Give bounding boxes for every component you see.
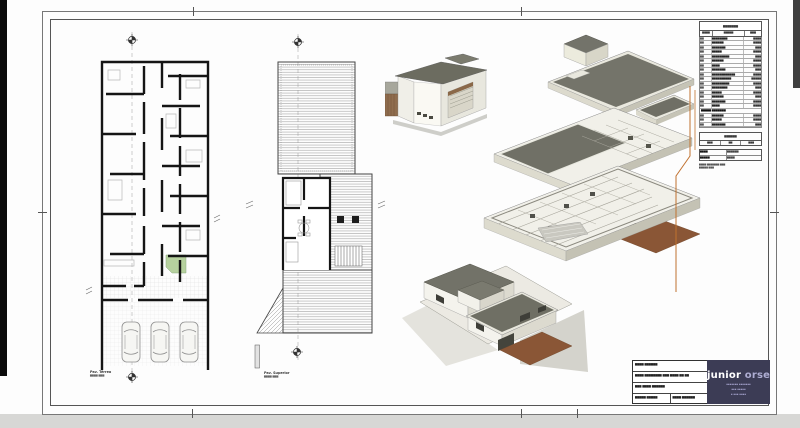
photo-edge-left — [0, 0, 7, 376]
schedule-cell: ▆▆ — [700, 123, 712, 127]
title-block: ▆▆▆▆ ▆▆▆▆▆▆▆▆▆▆ ▆▆▆▆▆▆▆▆ ▆▆▆ ▆▆▆▆ ▆▆ ▆▆▆… — [632, 360, 770, 404]
schedule-cell: ▆▆▆▆▆▆▆▆ — [712, 37, 744, 41]
side-box — [385, 82, 398, 94]
registration-tick — [521, 409, 522, 418]
schedule-cell: ▆▆ — [700, 95, 712, 99]
schedule2-header-cell: ▆▆ — [721, 141, 742, 145]
schedule-cell: ▆▆▆▆ — [744, 37, 761, 41]
schedule-cell: ▆▆▆▆▆▆▆ — [712, 123, 744, 127]
schedule-cell: ▆▆▆▆▆ — [712, 91, 744, 95]
schedule-cell: ▆▆ — [700, 46, 712, 50]
schedule-cell: ▆▆▆▆ — [744, 100, 761, 104]
schedule-cell: ▆▆ — [700, 82, 712, 86]
schedule-cell: ▆▆▆ — [744, 86, 761, 90]
wall-interior — [414, 82, 441, 126]
summary-row: ▆▆▆▆▆▆▆▆▆ — [700, 156, 761, 161]
schedule-header-cell: ▆▆▆ — [745, 31, 761, 36]
schedule-cell: ▆▆▆▆▆▆▆▆▆ — [712, 82, 744, 86]
summary-cell: ▆▆▆▆▆▆ — [727, 150, 761, 155]
caption-scale: ▆▆▆▆ ▆▆▆ — [90, 374, 111, 377]
firm-logo: junior orseli ▪▪▪▪▪▪▪ ▪▪▪▪▪▪▪ ▪▪▪ ▪▪▪▪▪ … — [707, 360, 770, 404]
roof-shed — [257, 288, 283, 333]
north-axis-symbol — [291, 346, 303, 358]
roof-hatch-main — [278, 62, 355, 174]
garage-door — [385, 94, 398, 116]
schedule-cell: ▆▆▆ — [744, 55, 761, 59]
column — [352, 216, 359, 223]
roof-upper-box — [445, 54, 479, 64]
schedule-cell: ▆▆ — [700, 86, 712, 90]
schedule-cell: ▆▆ — [700, 77, 712, 81]
logo-wordmark: junior orseli — [707, 370, 770, 381]
titleblock-field: ▆▆▆▆▆ ▆▆▆▆▆ — [633, 394, 670, 403]
area-schedule: ▆▆▆▆▆▆▆ ▆▆▆▆▆▆▆▆▆▆▆▆ ▆▆▆▆▆▆▆▆▆▆▆▆▆▆▆▆▆▆▆… — [699, 21, 762, 169]
schedule-cell: ▆▆▆▆ — [744, 82, 761, 86]
schedule-title: ▆▆▆▆▆▆▆ — [699, 21, 762, 31]
ground-plan-caption: Pav. Térreo ▆▆▆▆ ▆▆▆ — [90, 370, 111, 377]
registration-tick — [577, 409, 578, 418]
titleblock-field: ▆▆▆▆ ▆▆▆▆▆▆ — [633, 361, 707, 372]
photo-edge-bottom — [0, 414, 800, 428]
footnote-line: ▆▆▆▆▆ ▆▆▆ — [699, 166, 743, 169]
schedule-header-cell: ▆▆▆▆▆ — [713, 31, 745, 36]
car-top-view — [122, 322, 140, 362]
schedule-cell: ▆▆ — [700, 114, 712, 118]
titleblock-fields: ▆▆▆▆ ▆▆▆▆▆▆▆▆▆▆ ▆▆▆▆▆▆▆▆ ▆▆▆ ▆▆▆▆ ▆▆ ▆▆▆… — [632, 360, 707, 404]
schedule-cell: ▆▆ — [700, 100, 712, 104]
schedule-cell: ▆▆ — [700, 104, 712, 108]
schedule-cell: ▆▆▆▆▆▆ — [712, 95, 744, 99]
north-axis-symbol — [292, 36, 304, 48]
registration-tick — [193, 7, 194, 16]
ground-floor-plan — [58, 30, 228, 390]
schedule-row: ▆▆▆▆▆▆▆▆▆▆▆▆ — [700, 123, 761, 128]
schedule-cell: ▆▆▆ — [744, 46, 761, 50]
leader-line-orange — [676, 86, 690, 292]
registration-tick — [192, 409, 193, 418]
logo-text-light: orseli — [741, 370, 770, 381]
registration-tick — [521, 7, 522, 16]
drawing-sheet: Pav. Térreo ▆▆▆▆ ▆▆▆ — [0, 0, 800, 428]
schedule-cell: ▆▆▆▆▆▆▆▆▆▆ — [712, 77, 744, 81]
schedule-cell: ▆▆ — [700, 68, 712, 72]
schedule-cell: ▆▆▆▆▆ — [712, 50, 744, 54]
schedule-cell: ▆▆▆▆ — [744, 118, 761, 122]
summary-cell: ▆▆▆▆ — [727, 156, 761, 161]
summary-cell: ▆▆▆▆ — [700, 150, 727, 155]
schedule-body: ▆▆▆▆▆▆▆▆▆▆▆▆▆▆▆▆▆▆▆▆▆▆▆▆▆▆▆▆▆▆▆▆▆▆▆▆▆▆▆▆… — [699, 37, 762, 129]
schedule-cell: ▆▆ — [700, 64, 712, 68]
schedule-footnote: ▆▆▆▆ ▆▆▆▆▆▆▆ ▆▆▆ ▆▆▆▆▆ ▆▆▆ — [699, 163, 743, 169]
schedule2-header-cell: ▆▆▆ — [741, 141, 761, 145]
schedule-cell: ▆▆▆▆▆▆▆ — [712, 68, 744, 72]
schedule-cell: ▆▆▆▆▆▆▆ — [712, 100, 744, 104]
roof-hatch-terrace — [283, 270, 372, 333]
column — [337, 216, 344, 223]
schedule-cell: ▆▆ — [700, 59, 712, 63]
stairs — [335, 246, 362, 266]
schedule-cell: ▆▆▆▆▆ — [744, 77, 761, 81]
schedule-cell: ▆▆▆ — [744, 95, 761, 99]
schedule-cell: ▆▆▆▆ — [744, 50, 761, 54]
schedule2-head: ▆▆▆▆▆▆▆▆ — [699, 141, 762, 146]
schedule-cell: ▆▆▆▆ — [712, 104, 744, 108]
schedule-cell: ▆▆▆▆ — [744, 41, 761, 45]
schedule-cell: ▆▆▆▆ — [744, 59, 761, 63]
upper-plan-caption: Pav. Superior ▆▆▆▆ ▆▆▆ — [264, 371, 290, 378]
fixtures — [104, 70, 202, 266]
caption-scale: ▆▆▆▆ ▆▆▆ — [264, 375, 290, 378]
logo-subline: ▪ ▪▪▪ ▪▪▪▪ — [707, 393, 770, 397]
schedule-cell: ▆▆ — [700, 41, 712, 45]
schedule-cell: ▆▆▆▆ — [744, 91, 761, 95]
car-top-view — [180, 322, 198, 362]
schedule-cell: ▆▆▆▆▆▆ — [712, 59, 744, 63]
upper-floor-roof-plan — [240, 32, 390, 372]
registration-tick — [38, 212, 47, 213]
logo-text-bold: junior — [707, 370, 741, 381]
schedule-cell: ▆▆▆▆ — [744, 64, 761, 68]
schedule-cell: ▆▆ — [700, 91, 712, 95]
schedule-cell: ▆▆ — [700, 73, 712, 77]
schedule-cell: ▆▆▆▆▆ — [712, 118, 744, 122]
schedule-cell: ▆▆▆ — [744, 68, 761, 72]
schedule2-title: ▆▆▆▆▆▆ — [699, 132, 762, 141]
schedule-cell: ▆▆▆▆ — [744, 104, 761, 108]
assembled-3d-view — [402, 222, 592, 380]
photo-edge-right — [793, 0, 800, 88]
schedule-cell: ▆▆▆▆▆▆▆▆ — [712, 86, 744, 90]
north-axis-symbol — [126, 371, 138, 383]
titleblock-field: ▆▆▆▆ ▆▆▆▆▆▆▆▆ ▆▆▆ ▆▆▆▆ ▆▆ ▆▆ — [633, 372, 707, 383]
registration-tick — [770, 212, 779, 213]
schedule-cell: ▆▆ — [700, 50, 712, 54]
logo-subline: ▪▪▪ ▪▪▪▪▪ — [707, 388, 770, 392]
scale-bar — [255, 345, 260, 368]
landscape-patch — [166, 255, 186, 273]
logo-subline: ▪▪▪▪▪▪▪ ▪▪▪▪▪▪▪ — [707, 383, 770, 387]
schedule-cell: ▆▆▆▆ — [712, 64, 744, 68]
titleblock-field: ▆▆▆▆ ▆▆▆▆▆▆ — [670, 394, 708, 403]
schedule-cell: ▆▆▆▆▆▆▆ — [712, 46, 744, 50]
schedule2-header-cell: ▆▆▆ — [700, 141, 721, 145]
summary-rows: ▆▆▆▆▆▆▆▆▆▆▆▆▆▆▆▆▆▆▆ — [699, 149, 762, 161]
wall-left — [398, 76, 414, 123]
schedule-cell: ▆▆▆▆▆▆ — [712, 114, 744, 118]
schedule-header-cell: ▆▆▆▆ — [700, 31, 713, 36]
north-axis-symbol — [126, 34, 138, 46]
schedule-cell: ▆▆ — [700, 118, 712, 122]
titleblock-field-row: ▆▆▆▆▆ ▆▆▆▆▆▆▆▆▆ ▆▆▆▆▆▆ — [633, 394, 707, 403]
schedule-cell: ▆▆▆ — [744, 123, 761, 127]
schedule-cell: ▆▆▆▆ — [744, 73, 761, 77]
summary-cell: ▆▆▆▆▆ — [700, 156, 727, 161]
schedule-cell: ▆▆▆▆ — [744, 114, 761, 118]
car-top-view — [151, 322, 169, 362]
neighbor-slab — [538, 222, 588, 242]
schedule-cell: ▆▆ — [700, 37, 712, 41]
schedule-cell: ▆▆ — [700, 55, 712, 59]
titleblock-field: ▆▆▆ ▆▆▆▆ ▆▆▆▆▆▆ — [633, 383, 707, 394]
schedule-cell: ▆▆▆▆▆▆▆▆▆▆▆▆ — [712, 73, 744, 77]
schedule-cell: ▆▆▆▆▆▆▆▆▆ — [712, 55, 744, 59]
schedule-cell: ▆▆▆▆▆▆ — [712, 41, 744, 45]
